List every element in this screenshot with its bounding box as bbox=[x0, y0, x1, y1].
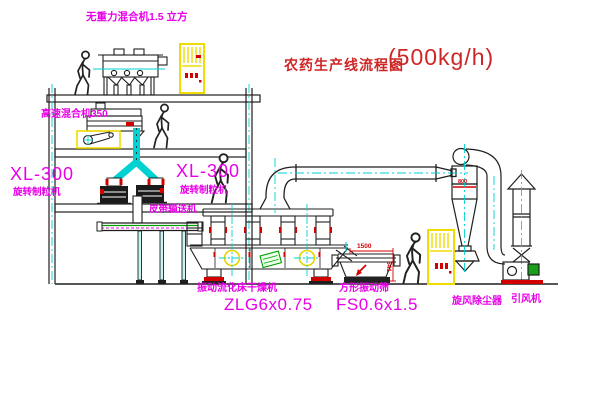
label-dryer-model: ZLG6x0.75 bbox=[224, 296, 313, 313]
label-screen-name: 方形振动筛 bbox=[339, 284, 389, 294]
diagram-title-capacity: (500kg/h) bbox=[388, 44, 494, 71]
label-dryer-name: 振动流化床干燥机 bbox=[197, 284, 277, 294]
diagram-title: 农药生产线流程图 bbox=[284, 55, 404, 75]
person-icon bbox=[75, 51, 90, 94]
dim-screen-length: 1500 bbox=[357, 243, 371, 250]
flow-diagram-canvas: 农药生产线流程图 (500kg/h) 无重力混合机1.5 立方 高速混合机350… bbox=[0, 0, 600, 403]
label-granulator-left-model: XL-300 bbox=[10, 165, 74, 183]
dim-cyclone: 800 bbox=[458, 179, 467, 185]
label-cyclone: 旋风除尘器 bbox=[452, 297, 502, 307]
gravity-free-mixer bbox=[93, 49, 167, 95]
dim-screen-height: 541 bbox=[385, 261, 392, 272]
label-granulator-left-name: 旋转制粒机 bbox=[13, 188, 61, 198]
granulator-discharge-pipe bbox=[133, 196, 142, 223]
label-granulator-mid-model: XL-300 bbox=[176, 162, 240, 180]
cyclone-dust-collector bbox=[451, 144, 505, 274]
control-cabinet-lower bbox=[428, 230, 454, 284]
label-belt-conveyor: 皮带输送机 bbox=[149, 205, 197, 215]
person-icon bbox=[404, 233, 421, 283]
induced-draft-fan bbox=[501, 262, 543, 284]
person-icon bbox=[154, 104, 169, 147]
exhaust-duct bbox=[260, 158, 468, 213]
fluid-bed-dryer bbox=[187, 204, 357, 284]
label-granulator-mid-name: 旋转制粒机 bbox=[180, 186, 228, 196]
label-screen-model: FS0.6x1.5 bbox=[336, 296, 418, 313]
label-gravity-mixer: 无重力混合机1.5 立方 bbox=[86, 12, 188, 23]
label-fan: 引风机 bbox=[511, 295, 541, 305]
control-cabinet-upper bbox=[180, 44, 204, 93]
granulator-left bbox=[97, 186, 131, 204]
label-high-speed-mixer: 高速混合机350 bbox=[41, 110, 108, 120]
